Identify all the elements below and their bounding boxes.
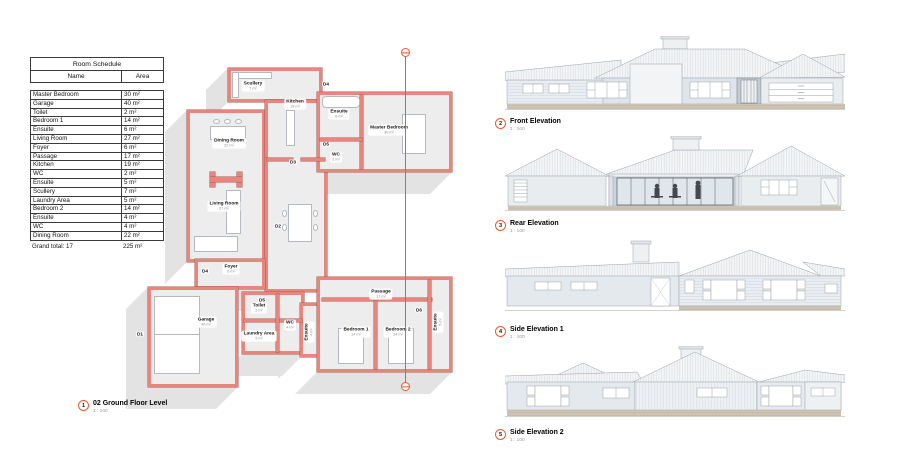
- patio-post: [735, 176, 739, 206]
- side-door: [651, 278, 670, 306]
- wall-kitchen-b: [301, 158, 325, 161]
- side2-center-wall: [635, 382, 757, 410]
- louver-vent: [514, 180, 527, 202]
- side-elevation-1-number: 4: [495, 326, 506, 337]
- furniture-chair: [282, 224, 287, 231]
- furniture-chair: [213, 119, 220, 124]
- window-pair: [761, 180, 797, 195]
- furniture-chair: [235, 119, 242, 124]
- window: [685, 280, 694, 293]
- side1-gable-roof: [679, 250, 821, 276]
- window-assembly: [587, 82, 627, 98]
- side-elevation-1-scale: 1 : 100: [510, 335, 564, 340]
- drawing-sheet: Room Schedule Name Area Master Bedroom30…: [0, 0, 900, 450]
- side-elevation-1-label: 4 Side Elevation 1 1 : 100: [495, 326, 564, 340]
- window-assembly: [690, 82, 730, 98]
- furniture-chaise: [226, 190, 241, 234]
- front-door: [737, 78, 761, 104]
- rear-right-gable: [737, 146, 845, 176]
- patio-beam: [609, 174, 739, 177]
- plinth: [508, 206, 841, 210]
- front-elevation-drawing: [505, 36, 845, 114]
- furniture-chair: [313, 210, 318, 217]
- side2-center-gable: [633, 352, 759, 382]
- window-pair: [697, 388, 727, 397]
- rear-elevation-title: Rear Elevation: [510, 220, 559, 228]
- plan-number-circle: 1: [78, 400, 89, 411]
- plan-title-block: 1 02 Ground Floor Level 1 : 100: [78, 400, 167, 414]
- furniture-bath: [322, 96, 360, 108]
- furniture-garage-line: [154, 334, 200, 335]
- side1-long-roof: [505, 262, 679, 276]
- rear-main-roof: [601, 150, 753, 176]
- window-pair: [571, 282, 597, 290]
- furniture-table: [288, 204, 312, 242]
- section-marker-bottom: [401, 382, 410, 391]
- rear-elevation-scale: 1 : 100: [510, 229, 559, 234]
- window-pair: [603, 388, 629, 398]
- garage-door: [769, 83, 833, 102]
- wall-service-h: [244, 319, 302, 322]
- furniture-bed2: [388, 328, 414, 364]
- furniture-kitchen-island: [286, 110, 295, 146]
- room-block-service: [242, 292, 304, 354]
- window-pair: [535, 282, 561, 290]
- side2-right-roof: [759, 370, 845, 382]
- front-elevation-label: 2 Front Elevation 1 : 100: [495, 118, 561, 132]
- section-marker-top: [401, 48, 410, 57]
- wall-master-ensuite: [360, 95, 363, 169]
- wall-ensuite-right: [428, 280, 431, 369]
- window-pair: [811, 388, 835, 396]
- side-elevation-2-scale: 1 : 100: [510, 438, 564, 443]
- room-block-foyer: [195, 259, 265, 289]
- wall-bedrooms: [374, 301, 377, 369]
- furniture-chair: [282, 210, 287, 217]
- rear-elevation-drawing: [505, 136, 845, 216]
- wall-service-v: [276, 294, 279, 352]
- side-elevation-2-label: 5 Side Elevation 2 1 : 100: [495, 429, 564, 443]
- rear-elevation-number: 3: [495, 220, 506, 231]
- fireplace-bar: [210, 177, 242, 182]
- furniture-sofa: [194, 236, 238, 252]
- rear-elevation-label: 3 Rear Elevation 1 : 100: [495, 220, 559, 234]
- plan-title: 02 Ground Floor Level: [93, 400, 167, 408]
- plinth: [679, 306, 841, 310]
- wall-master-wc: [320, 138, 362, 141]
- furniture-dining-table: [210, 126, 246, 140]
- plinth: [507, 410, 841, 416]
- window: [825, 284, 837, 293]
- entry-volume: [630, 64, 682, 104]
- side-elevation-1-title: Side Elevation 1: [510, 326, 564, 334]
- front-elevation-number: 2: [495, 118, 506, 129]
- section-line: [405, 56, 406, 382]
- side-elevation-1-drawing: [505, 240, 845, 320]
- furniture-garage-car-bay: [154, 296, 200, 374]
- patio-post: [609, 176, 613, 206]
- side-elevation-2-drawing: [505, 346, 845, 426]
- plinth: [507, 104, 845, 109]
- front-elevation-scale: 1 : 100: [510, 127, 561, 132]
- rear-left-gable: [505, 149, 609, 176]
- chimney: [633, 242, 649, 262]
- side-elevation-2-number: 5: [495, 429, 506, 440]
- furniture-scullery-counter2: [232, 72, 239, 98]
- front-elevation-title: Front Elevation: [510, 118, 561, 126]
- furniture-chair: [313, 224, 318, 231]
- furniture-chair: [224, 119, 231, 124]
- wall-passage: [322, 298, 432, 301]
- side-elevation-2-title: Side Elevation 2: [510, 429, 564, 437]
- wall-kitchen-a: [267, 158, 293, 161]
- furniture-bed1: [338, 328, 364, 364]
- plan-scale: 1 : 100: [93, 409, 167, 414]
